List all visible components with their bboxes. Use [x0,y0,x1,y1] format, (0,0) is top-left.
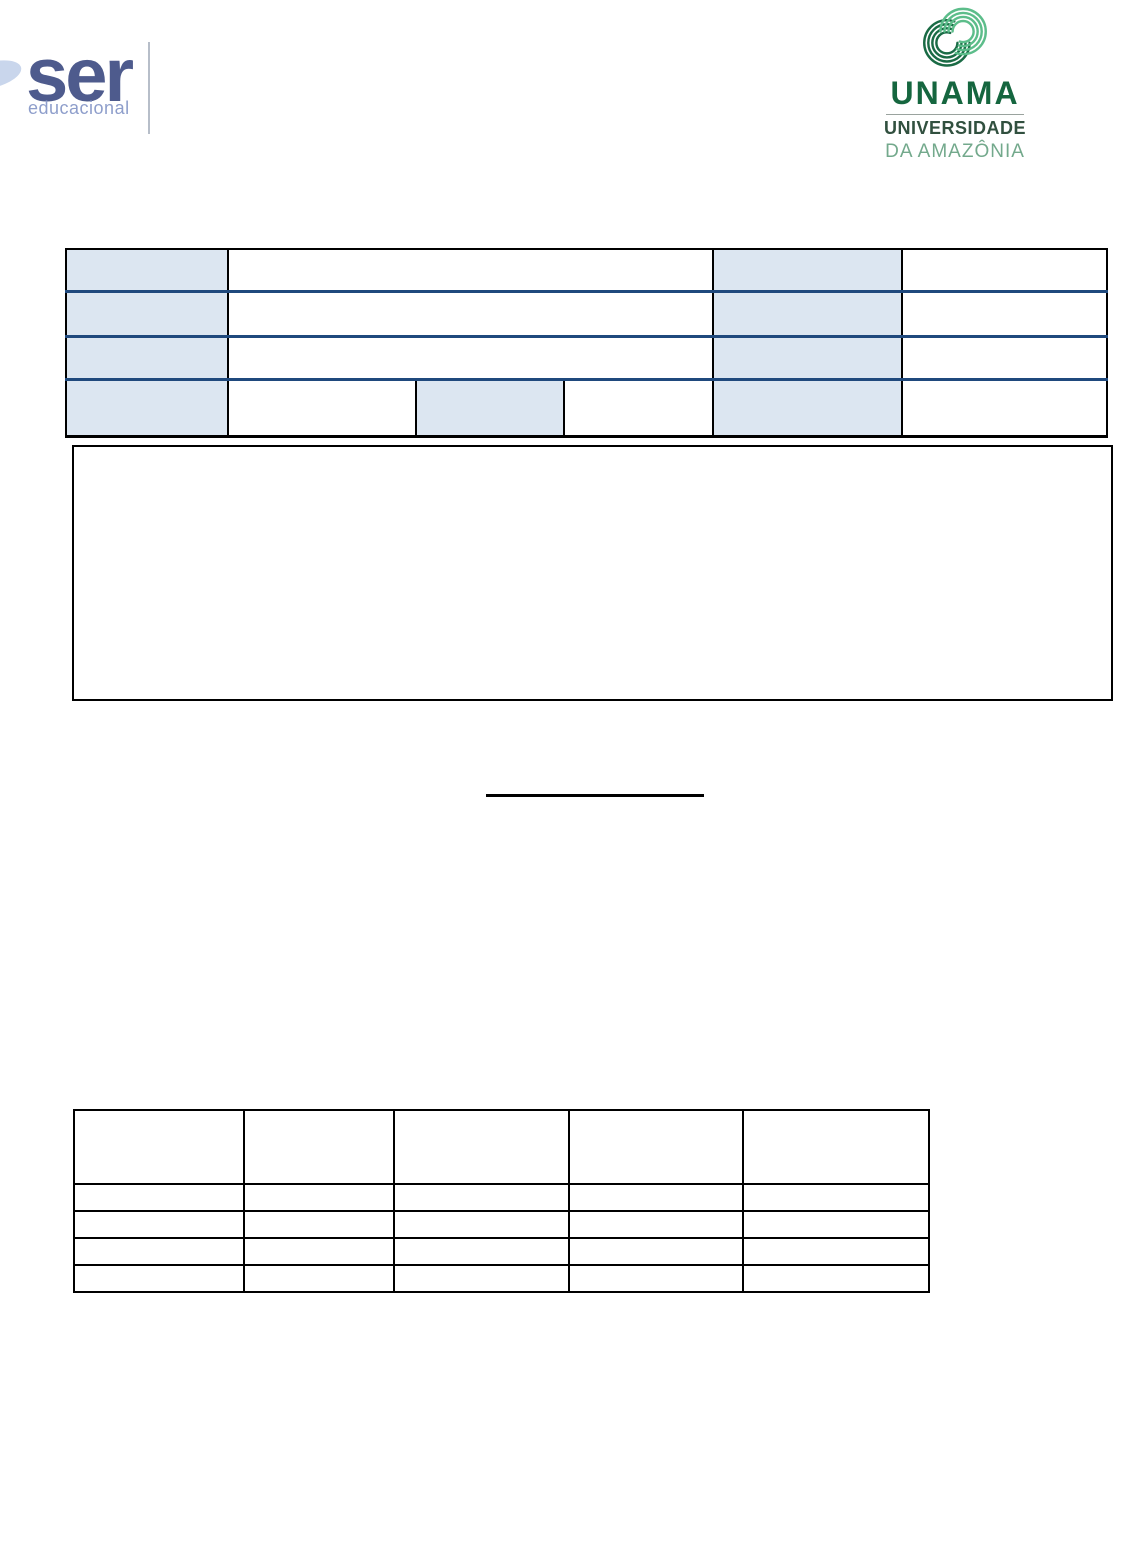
unama-acronym: UNAMA [878,77,1032,109]
grid-cell [569,1184,743,1211]
info-label-cell [66,337,228,380]
grid-cell [569,1211,743,1238]
grid-row [74,1238,929,1265]
grid-cell [74,1238,244,1265]
info-label-cell [713,337,902,380]
grid-row [74,1184,929,1211]
info-label-cell [713,380,902,437]
grid-cell [74,1265,244,1292]
center-blank-underline [486,794,704,797]
info-value-cell [902,249,1107,292]
grid-cell [743,1238,929,1265]
info-label-cell [713,292,902,337]
unama-universidade-label: UNIVERSIDADE [878,119,1032,139]
info-value-cell [228,249,713,292]
grid-cell [394,1238,569,1265]
ser-educacional-logo: ser educacional [0,0,220,160]
info-value-cell [902,292,1107,337]
info-table [65,248,1108,438]
grid-cell [569,1265,743,1292]
grid-cell [394,1265,569,1292]
grid-cell [244,1184,394,1211]
document-page: ser educacional UNAMA [0,0,1122,1559]
info-value-cell [228,292,713,337]
unama-divider [886,114,1024,115]
info-value-cell [564,380,713,437]
grid-header-cell [743,1110,929,1184]
grid-cell [743,1184,929,1211]
grid-row [74,1265,929,1292]
grid-cell [394,1211,569,1238]
grid-header-row [74,1110,929,1184]
grid-header-cell [74,1110,244,1184]
grid-row [74,1211,929,1238]
grid-cell [244,1211,394,1238]
grid-header-cell [394,1110,569,1184]
info-table-row [66,249,1107,292]
grid-cell [244,1238,394,1265]
info-label-cell [713,249,902,292]
grid-header-cell [569,1110,743,1184]
info-label-cell [66,249,228,292]
info-value-cell [228,337,713,380]
grid-cell [743,1211,929,1238]
info-value-cell [902,337,1107,380]
unama-loops-icon [914,4,996,72]
info-label-cell [416,380,564,437]
grid-cell [244,1265,394,1292]
info-value-cell [902,380,1107,437]
info-table-row [66,380,1107,437]
grid-cell [74,1211,244,1238]
unama-logo: UNAMA UNIVERSIDADE DA AMAZÔNIA [878,4,1032,163]
grid-cell [743,1265,929,1292]
ser-swoosh-icon [0,55,24,95]
grid-table [73,1109,930,1293]
content-box [72,445,1113,701]
info-value-cell [228,380,416,437]
grid-cell [394,1184,569,1211]
grid-header-cell [244,1110,394,1184]
grid-cell [569,1238,743,1265]
ser-logo-tagline: educacional [28,99,130,117]
logo-divider [148,42,150,134]
info-label-cell [66,292,228,337]
info-label-cell [66,380,228,437]
info-table-row [66,337,1107,380]
info-table-row [66,292,1107,337]
unama-da-amazonia-label: DA AMAZÔNIA [878,141,1032,163]
grid-cell [74,1184,244,1211]
